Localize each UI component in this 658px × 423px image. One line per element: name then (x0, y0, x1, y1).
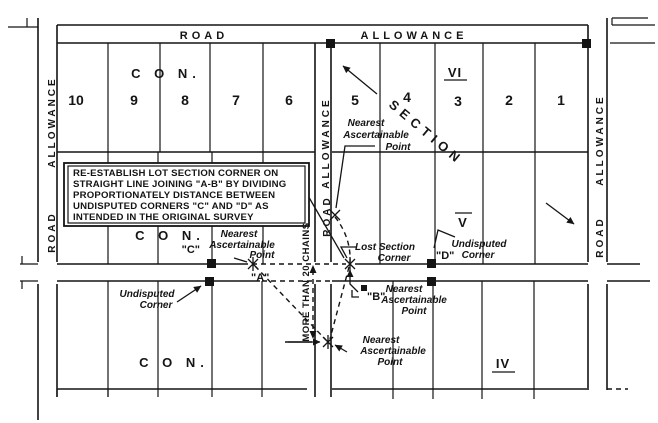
nap-north-l2: Ascertainable (342, 130, 409, 141)
survey-diagram-canvas: RE-ESTABLISH LOT SECTION CORNER ON STRAI… (0, 0, 658, 423)
undisputed-corner-monument (427, 277, 436, 286)
corner-d-monument (427, 259, 436, 268)
lot-7: 7 (232, 92, 240, 108)
nap-north-l3: Point (386, 142, 412, 153)
instruction-line-3: PROPORTIONATELY DISTANCE BETWEEN (73, 190, 275, 201)
undisputed-west-l2: Corner (140, 300, 174, 311)
survey-diagram: RE-ESTABLISH LOT SECTION CORNER ON STRAI… (0, 0, 658, 423)
con-label-west: C O N. (135, 228, 205, 243)
west-road-label: ROAD (47, 211, 58, 252)
top-road-label: ROAD (180, 30, 228, 42)
nap-b-l1: Nearest (386, 284, 423, 295)
nap-south-l2: Ascertainable (359, 346, 426, 357)
lot-3: 3 (454, 93, 462, 109)
lot-4: 4 (403, 89, 411, 105)
nap-south-l3: Point (378, 357, 404, 368)
instruction-line-1: RE-ESTABLISH LOT SECTION CORNER ON (73, 168, 278, 179)
undisputed-corner-monument (205, 277, 214, 286)
centre-road-label: ROAD (322, 195, 333, 236)
undisputed-east-l2: Corner (462, 250, 496, 261)
lost-corner-l1: Lost Section (355, 242, 415, 253)
section-v-label: V (458, 215, 468, 230)
nap-north-l1: Nearest (348, 118, 385, 129)
point-c-label: "C" (182, 244, 200, 256)
lost-corner-l2: Corner (378, 253, 412, 264)
nap-south-l1: Nearest (363, 335, 400, 346)
con-label-nw: C O N. (131, 66, 201, 81)
point-a-leader (234, 258, 247, 262)
east-road-label: ROAD (595, 216, 606, 257)
section-corner-monument (582, 39, 591, 48)
top-allowance-label: ALLOWANCE (361, 30, 468, 42)
undisputed-east-l1: Undisputed (452, 239, 508, 250)
section-iv-label: IV (496, 356, 510, 371)
west-allowance-label: ALLOWANCE (47, 76, 58, 167)
instruction-box: RE-ESTABLISH LOT SECTION CORNER ON STRAI… (64, 163, 309, 226)
lot-2: 2 (505, 92, 513, 108)
point-a-label: "A" (251, 272, 269, 284)
lost-corner-to-south-point-line (330, 267, 349, 339)
nap-a-l1: Nearest (221, 229, 258, 240)
con-label-sw: C O N. (139, 355, 209, 370)
lot-1: 1 (557, 92, 565, 108)
undisputed-west-leader (177, 286, 201, 302)
section-vi-label: VI (448, 65, 462, 80)
lot-5: 5 (351, 92, 359, 108)
lot-8: 8 (181, 92, 189, 108)
centre-allowance-label: ALLOWANCE (321, 97, 332, 188)
point-d-label: "D" (436, 250, 454, 262)
lost-corner-marker (345, 257, 355, 271)
south-point-leader (335, 345, 347, 352)
lot-9: 9 (130, 92, 138, 108)
east-allowance-label: ALLOWANCE (595, 94, 606, 185)
lot-10: 10 (68, 92, 84, 108)
distance-dimension-label: MORE THAN 20 CHAINS (301, 222, 312, 341)
nap-b-l3: Point (402, 306, 428, 317)
instruction-line-2: STRAIGHT LINE JOINING "A-B" BY DIVIDING (73, 179, 286, 190)
north-point-leader (336, 146, 375, 208)
corner-c-monument (207, 259, 216, 268)
arrow-to-section-corner (343, 66, 377, 94)
instruction-line-5: INTENDED IN THE ORIGINAL SURVEY (73, 212, 254, 223)
lot-6: 6 (285, 92, 293, 108)
nap-a-l3: Point (250, 250, 276, 261)
undisputed-west-l1: Undisputed (120, 289, 176, 300)
nap-b-l2: Ascertainable (380, 295, 447, 306)
instruction-line-4: UNDISPUTED CORNERS "C" AND "D" AS (73, 201, 269, 212)
arrow-to-road-limit (546, 203, 574, 224)
section-corner-monument (326, 39, 335, 48)
